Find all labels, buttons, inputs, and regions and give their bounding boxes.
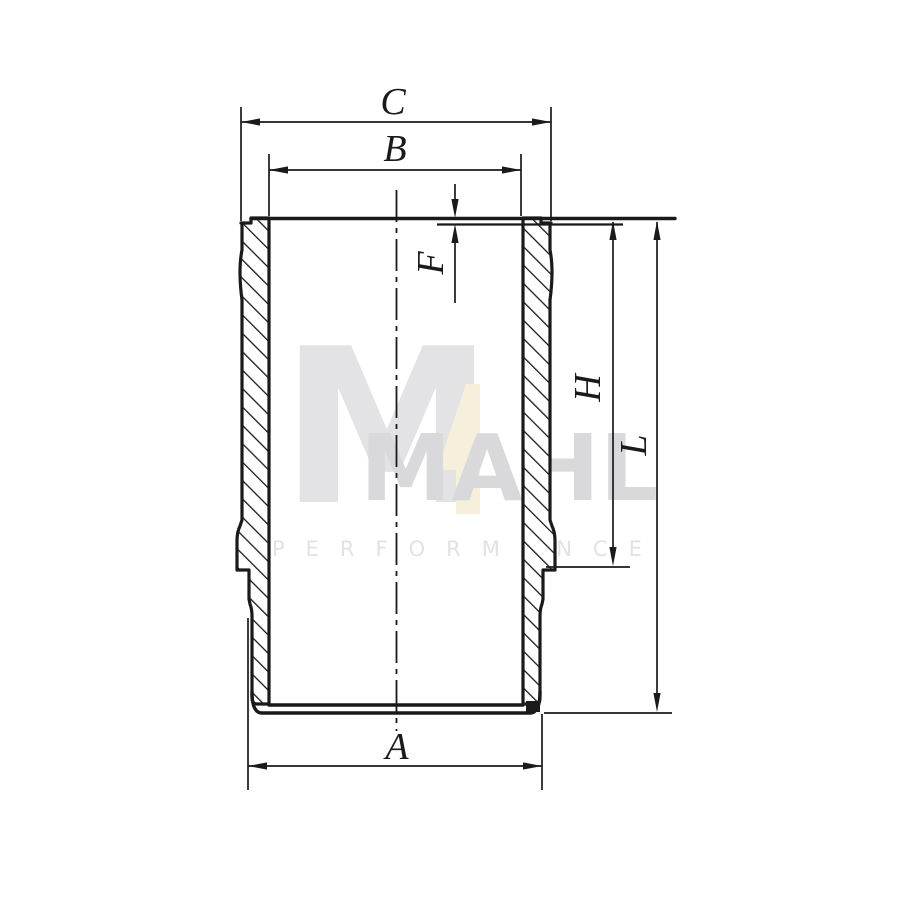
dim-label-B: B	[383, 128, 406, 170]
arrowhead-B-right	[502, 166, 521, 173]
dimension-B: B	[269, 128, 521, 216]
dim-label-F: F	[410, 251, 452, 276]
liner-right-wall-section	[523, 218, 555, 704]
dimension-F: F	[410, 184, 459, 303]
arrowhead-A-right	[523, 762, 542, 769]
arrowhead-F-bottom	[451, 224, 458, 243]
arrowhead-C-right	[532, 118, 551, 125]
dim-label-C: C	[380, 81, 406, 123]
arrowhead-L-top	[653, 221, 660, 240]
dim-label-L: L	[613, 434, 655, 456]
dim-label-H: H	[567, 372, 609, 403]
watermark-tagline: PERFORMANCE	[272, 537, 663, 561]
arrowhead-L-bottom	[653, 693, 660, 712]
arrowhead-B-left	[269, 166, 288, 173]
watermark: M MAHL PERFORMANCE	[272, 302, 663, 561]
dim-label-A: A	[382, 726, 409, 768]
liner-left-wall-section	[237, 218, 269, 704]
cylinder-liner-drawing-page: M MAHL PERFORMANCE C B	[0, 0, 900, 900]
arrowhead-A-left	[248, 762, 267, 769]
arrowhead-F-top	[451, 199, 458, 218]
arrowhead-C-left	[241, 118, 260, 125]
technical-drawing-canvas: M MAHL PERFORMANCE C B	[0, 0, 900, 900]
liner-bottom-right-step	[526, 701, 540, 712]
